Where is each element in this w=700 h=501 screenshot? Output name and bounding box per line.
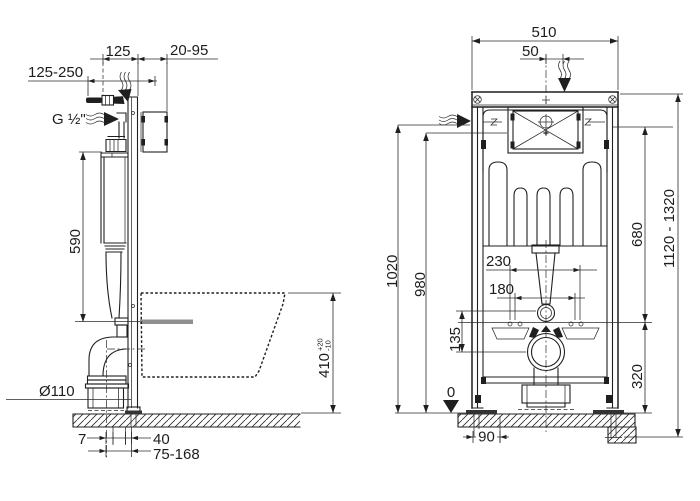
dim-590: 590	[67, 152, 102, 322]
dim-bottom-left: 7 40 75-168	[78, 427, 200, 463]
top-water-inlet-arrow	[558, 61, 571, 92]
datum-zero: 0	[395, 384, 472, 413]
dim-label-410: 410	[316, 353, 333, 378]
waste-outlet	[518, 55, 574, 432]
mounting-frame	[472, 92, 618, 408]
dim-label-135: 135	[447, 327, 464, 352]
wc-bowl-outline	[141, 293, 285, 377]
dim-label-590: 590	[67, 229, 84, 254]
access-panel	[483, 107, 605, 153]
dim-label-510: 510	[531, 24, 556, 41]
side-water-inlet-arrow	[439, 114, 471, 128]
seat-axis-bar	[75, 320, 193, 325]
dim-label-980: 980	[412, 272, 429, 297]
technical-drawing-page: 125 20-95 125-250 G ½" 590 410 +20 -1	[0, 0, 700, 501]
cistern-front	[483, 162, 607, 246]
dim-label-50: 50	[522, 43, 539, 60]
front-view: 510 50 1020 980 230	[384, 24, 683, 446]
side-view: 125 20-95 125-250 G ½" 590 410 +20 -1	[6, 42, 341, 463]
dim-180: 180	[489, 281, 585, 320]
dim-label-680: 680	[629, 222, 646, 247]
floor-section-left	[73, 414, 300, 427]
dim-410: 410 +20 -10	[288, 293, 341, 413]
dim-320: 320	[618, 322, 652, 413]
dim-label-20-95: 20-95	[170, 42, 208, 59]
dim-label-125: 125	[105, 43, 130, 60]
dim-label-90: 90	[478, 429, 495, 446]
water-supply-pipe	[86, 96, 125, 106]
frame-rail-side	[125, 97, 142, 427]
dim-50: 50	[520, 43, 584, 64]
dim-label-75-168: 75-168	[153, 446, 200, 463]
dim-label-230: 230	[486, 253, 511, 270]
dim-label-180: 180	[489, 281, 514, 298]
label-supply-thread: G ½"	[52, 111, 86, 128]
dim-label-7: 7	[78, 431, 86, 448]
flush-pipe-funnel	[532, 245, 559, 322]
dim-label-1020: 1020	[384, 255, 401, 288]
dim-1020: 1020	[384, 125, 470, 413]
dim-label-1120-1320: 1120 - 1320	[661, 189, 678, 268]
dim-510: 510	[472, 24, 618, 90]
dim-980: 980	[412, 133, 507, 413]
supply-thread-arrow	[86, 112, 126, 152]
wall-bracket-block	[141, 112, 168, 152]
dim-label-320: 320	[629, 364, 646, 389]
cistern-side	[101, 153, 128, 337]
wc-frame-installation-drawing: 125 20-95 125-250 G ½" 590 410 +20 -1	[0, 0, 700, 501]
dim-label-125-250: 125-250	[28, 64, 83, 81]
datum-label: 0	[447, 384, 455, 401]
dim-dia-110: Ø110	[6, 383, 131, 400]
dim-135: 135	[447, 311, 536, 352]
dim-label-dia110: Ø110	[39, 383, 75, 400]
dim-label-410-minus: -10	[324, 340, 333, 351]
